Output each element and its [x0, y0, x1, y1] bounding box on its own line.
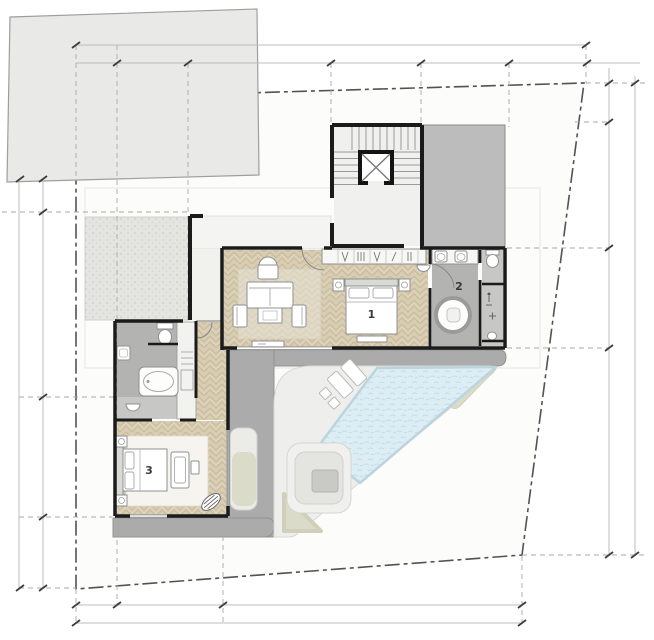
nightstand-bottom — [116, 495, 127, 506]
armchair-right — [292, 305, 306, 327]
side-table — [191, 461, 199, 474]
floor-plan-canvas: 1 2 3 — [0, 0, 654, 640]
elevator-door-opening — [368, 181, 384, 185]
pillow — [125, 472, 134, 489]
pillow — [349, 288, 369, 298]
bathroom-3-shower-floor — [117, 397, 178, 419]
floor-plan-page: 1 2 3 — [0, 0, 654, 640]
bidet-icon — [488, 332, 497, 340]
nightstand-right — [399, 279, 410, 291]
tv-console — [252, 341, 284, 347]
flat-roof — [423, 125, 505, 248]
wardrobe-bedroom-1 — [322, 249, 426, 264]
bedroom-3-label: 3 — [145, 464, 153, 477]
nightstand-top — [116, 436, 127, 447]
pillow — [373, 288, 393, 298]
platform-table — [312, 470, 338, 492]
entry-canopy — [190, 216, 331, 249]
pillow — [125, 452, 134, 469]
entry-path — [192, 249, 221, 320]
nightstand-left — [333, 279, 344, 291]
sofa — [247, 282, 293, 308]
headboard — [345, 279, 398, 286]
sink-icon — [117, 346, 130, 360]
planter-left — [232, 452, 256, 506]
entry-deck — [85, 217, 189, 320]
armchair-left — [233, 305, 247, 327]
bathroom-2-label: 2 — [455, 280, 463, 293]
bedroom-3-furniture — [116, 436, 223, 514]
bed-end-bench — [357, 336, 387, 342]
accent-chair — [258, 257, 278, 279]
toilet-icon — [157, 323, 173, 329]
neighbor-building — [7, 9, 259, 182]
stair-hall-floor — [334, 127, 420, 246]
headboard — [116, 447, 123, 495]
bedroom-1-label: 1 — [368, 308, 376, 321]
terrace-bottom-band — [113, 518, 274, 537]
coffee-table — [258, 308, 282, 323]
lounge-platform — [287, 443, 351, 513]
